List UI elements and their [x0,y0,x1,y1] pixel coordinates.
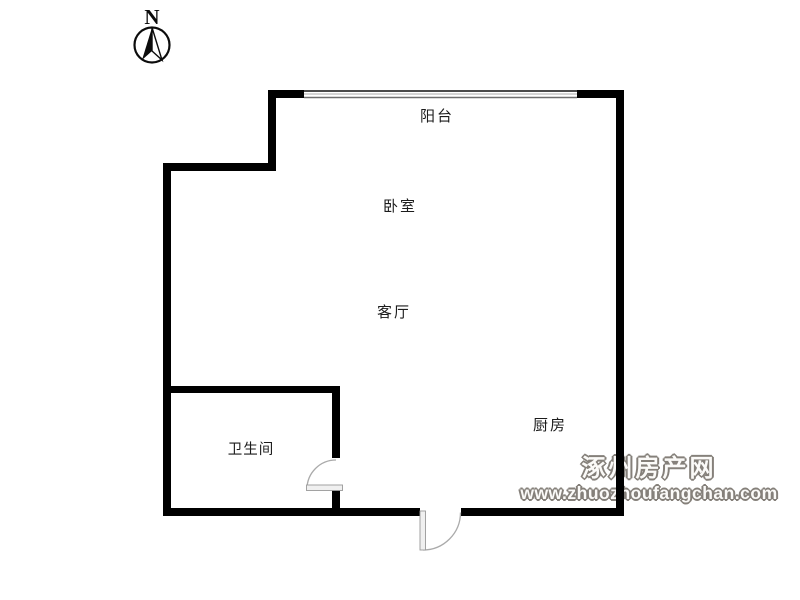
north-label: N [144,5,159,29]
bathroom-door-leaf [307,485,343,491]
compass-needle-right-icon [152,28,162,61]
entrance-door [420,511,461,550]
bathroom-door [307,460,343,491]
room-label-living-room: 客厅 [377,304,411,321]
wall-bottom-left-segment [163,508,420,516]
entrance-door-leaf [420,511,426,550]
north-compass: N [135,5,170,63]
wall-bottom-right-segment [461,508,624,516]
room-label-bedroom: 卧室 [383,198,417,215]
wall-left [163,163,171,516]
compass-needle-left-icon [142,28,152,61]
wall-notch-vertical [268,90,276,171]
wall-right [616,90,624,516]
wall-bathroom-right-lower [332,490,340,508]
floorplan-canvas: N [0,0,800,600]
room-label-bathroom: 卫生间 [228,441,275,458]
floorplan-page: 涿州房产网 www.zhuozhoufangchan.com N [0,0,800,600]
wall-notch-horizontal [163,163,276,171]
room-label-balcony: 阳台 [420,108,454,125]
room-label-kitchen: 厨房 [533,417,567,434]
balcony-window [304,90,577,98]
wall-top-left-segment [268,90,304,98]
wall-bathroom-top [163,386,340,393]
entrance-door-arc [423,513,461,551]
wall-bathroom-right-upper [332,386,340,458]
room-labels: 阳台 卧室 客厅 卫生间 厨房 [228,108,567,458]
